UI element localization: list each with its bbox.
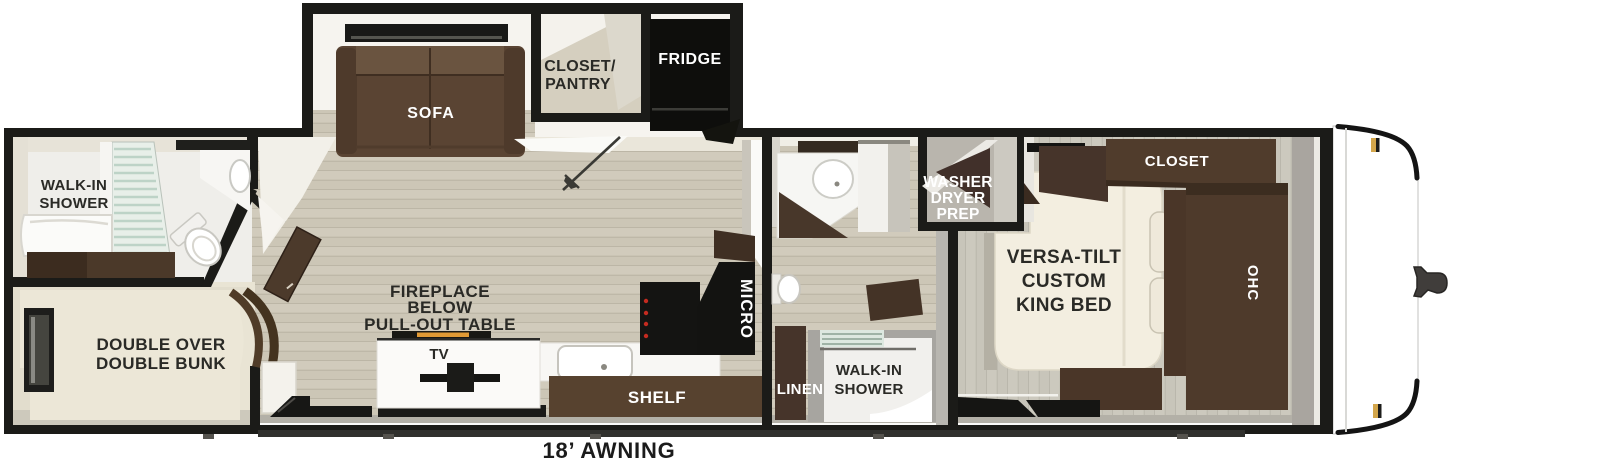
svg-text:CUSTOM: CUSTOM (1022, 271, 1106, 292)
svg-text:SHOWER: SHOWER (834, 381, 903, 398)
svg-text:DRYER: DRYER (931, 190, 986, 207)
svg-text:KING BED: KING BED (1016, 295, 1112, 316)
svg-text:WALK-IN: WALK-IN (836, 362, 902, 379)
svg-text:PREP: PREP (936, 206, 979, 223)
svg-text:18’ AWNING: 18’ AWNING (542, 438, 675, 460)
svg-text:VERSA-TILT: VERSA-TILT (1007, 247, 1121, 268)
svg-text:SHOWER: SHOWER (39, 195, 108, 212)
svg-text:WALK-IN: WALK-IN (41, 177, 107, 194)
svg-text:MICRO: MICRO (737, 279, 755, 339)
svg-text:PANTRY: PANTRY (545, 76, 611, 93)
svg-text:TV: TV (429, 346, 448, 363)
svg-text:SHELF: SHELF (628, 388, 686, 407)
svg-text:CLOSET: CLOSET (1145, 153, 1209, 170)
svg-text:OHC: OHC (1244, 265, 1261, 301)
svg-text:DOUBLE OVER: DOUBLE OVER (96, 335, 225, 354)
svg-text:CLOSET/: CLOSET/ (544, 58, 616, 75)
svg-text:PULL-OUT TABLE: PULL-OUT TABLE (364, 315, 516, 334)
svg-text:LINEN: LINEN (777, 381, 824, 398)
svg-text:FRIDGE: FRIDGE (658, 51, 721, 68)
svg-text:DOUBLE BUNK: DOUBLE BUNK (96, 354, 226, 373)
svg-text:WASHER: WASHER (923, 174, 992, 191)
svg-text:SOFA: SOFA (407, 105, 455, 122)
